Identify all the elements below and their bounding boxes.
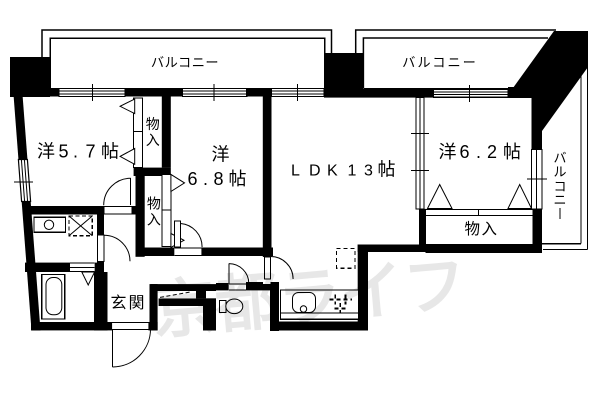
svg-text:洋6.2帖: 洋6.2帖 (439, 142, 522, 162)
svg-text:洋5.7帖: 洋5.7帖 (37, 142, 119, 162)
svg-text:洋: 洋 (212, 145, 230, 165)
svg-text:物: 物 (147, 195, 161, 211)
svg-text:ル: ル (553, 165, 566, 180)
svg-text:物: 物 (146, 116, 160, 132)
svg-text:入: 入 (146, 132, 160, 148)
svg-text:玄関: 玄関 (110, 294, 146, 312)
svg-text:バ: バ (553, 151, 566, 166)
svg-text:物入: 物入 (464, 220, 498, 238)
svg-text:6.8帖: 6.8帖 (188, 169, 247, 189)
svg-text:バルコニー: バルコニー (402, 55, 478, 70)
svg-text:バルコニー: バルコニー (151, 55, 219, 70)
svg-text:ニ: ニ (553, 193, 566, 208)
svg-text:入: 入 (147, 211, 161, 227)
